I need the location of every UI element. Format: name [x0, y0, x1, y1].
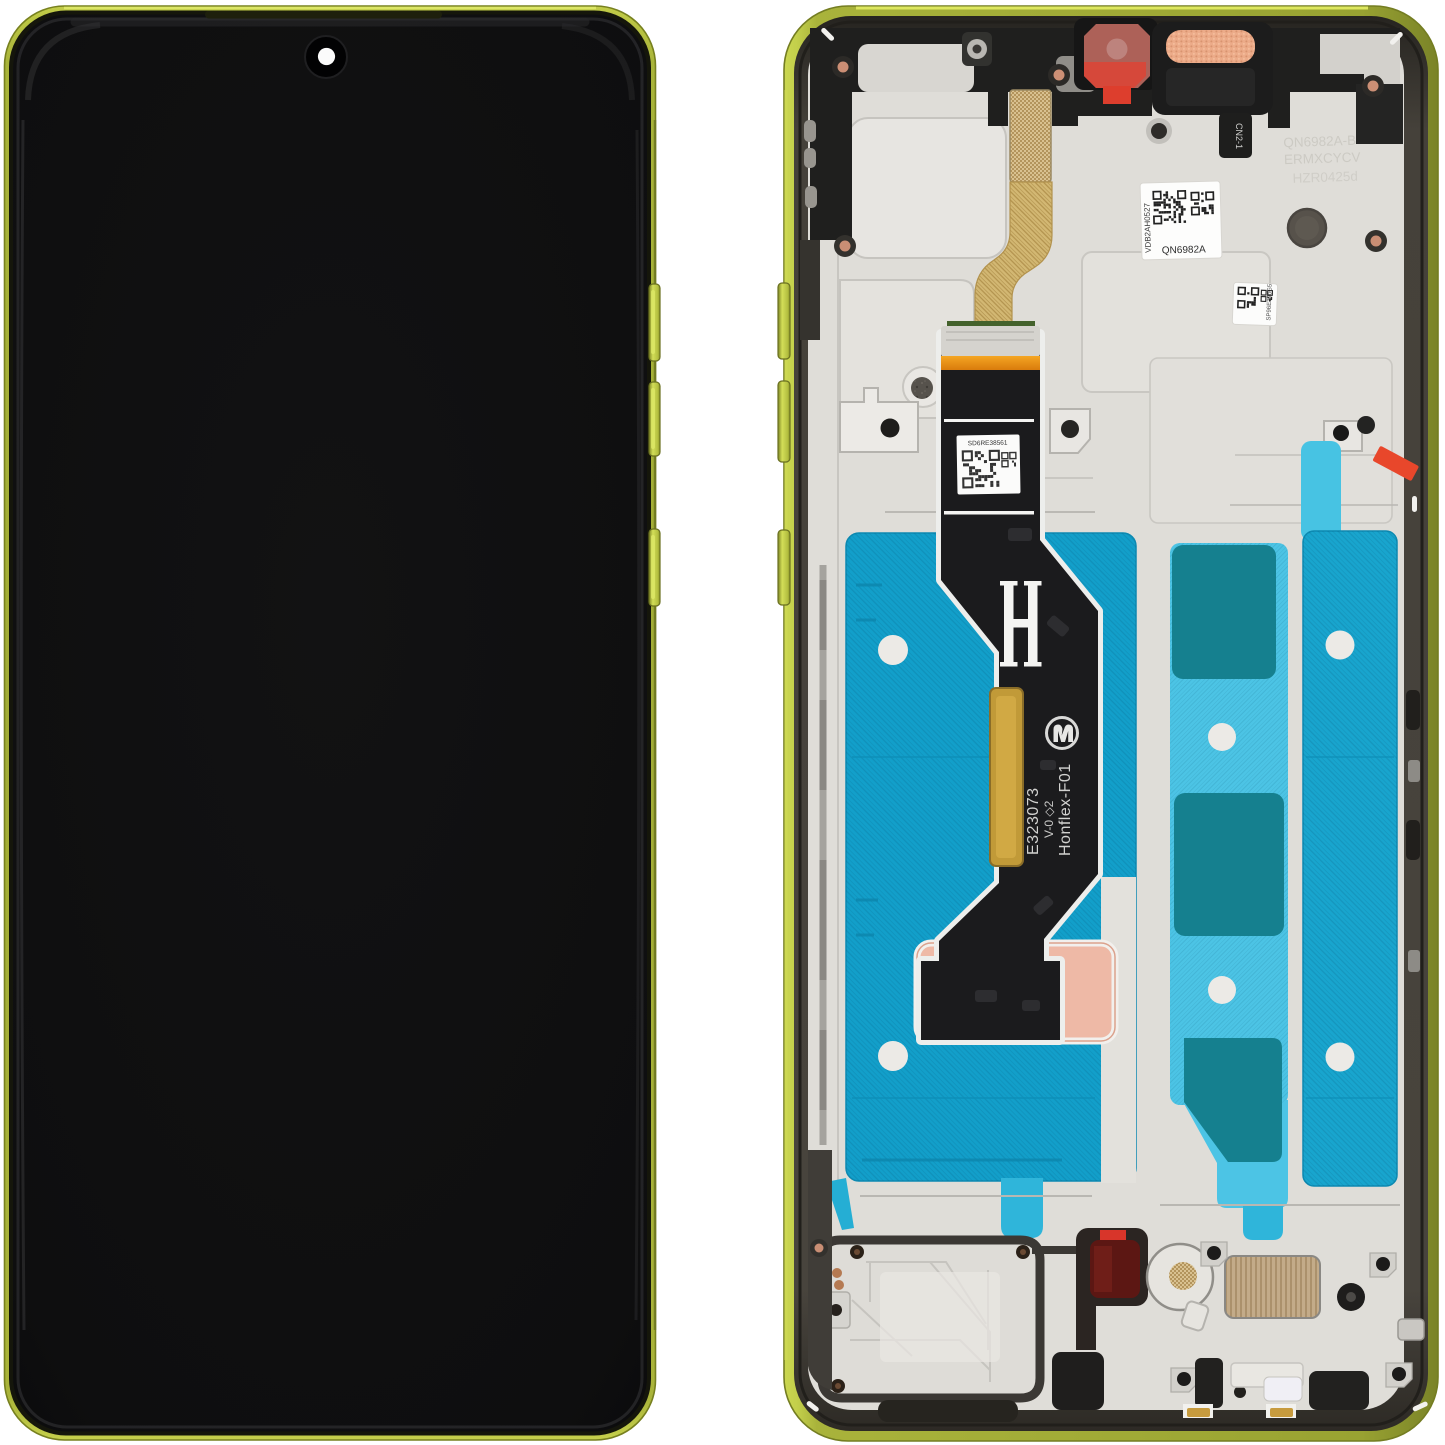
svg-text:QN6982A-B: QN6982A-B: [1283, 133, 1356, 151]
svg-text:V-0 ◇2: V-0 ◇2: [1042, 800, 1056, 838]
svg-text:Honflex-F01: Honflex-F01: [1057, 763, 1074, 856]
svg-text:HZR0425d: HZR0425d: [1292, 169, 1358, 186]
svg-text:ERMXCYCV: ERMXCYCV: [1284, 150, 1361, 168]
svg-text:CN2-1: CN2-1: [1234, 123, 1244, 149]
svg-text:SD6RE38561: SD6RE38561: [968, 440, 1008, 448]
svg-text:VDB2AH0527: VDB2AH0527: [1143, 202, 1153, 253]
svg-text:E323073: E323073: [1025, 787, 1042, 855]
svg-text:QN6982A: QN6982A: [1162, 244, 1207, 256]
